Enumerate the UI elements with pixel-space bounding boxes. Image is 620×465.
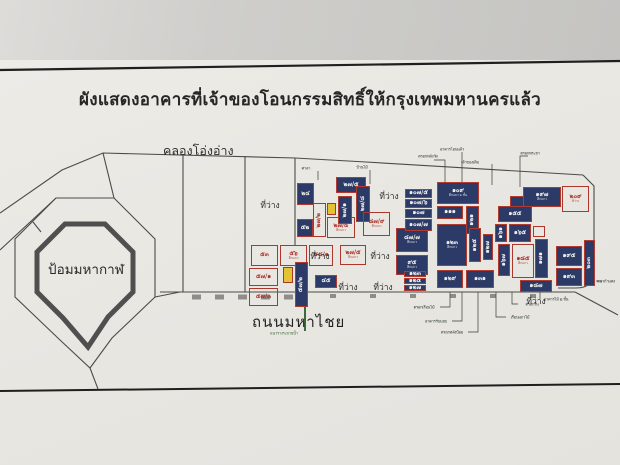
tiny-annotation: ตรอกหลังวัด xyxy=(418,153,438,160)
plot-๑๒๙: ๑๒๙ xyxy=(437,270,463,288)
plot-๑๒๗: ๑๒๗ xyxy=(483,234,493,260)
plot-๕๗/๑: ๕๗/๑ xyxy=(249,268,278,286)
plot-๕๗/๓: ๕๗/๓ xyxy=(249,288,278,306)
tiny-annotation: ตรอกเรือนไม้ xyxy=(414,304,435,311)
tiny-annotation: แนวกำแพง xyxy=(597,278,615,285)
vacant-label: ที่ว่าง xyxy=(260,198,279,212)
vacant-label: ที่ว่าง xyxy=(379,189,398,203)
plot-๑๒๕: ๑๒๕ xyxy=(404,278,426,284)
poster-top-border xyxy=(0,61,620,70)
plot-๑๙๗: ๑๙๗ตึกแถว xyxy=(523,187,561,207)
fort-label: ป้อมมหากาฬ xyxy=(30,258,142,280)
tiny-annotation: อาคารโอนแล้ว xyxy=(440,146,464,153)
plot-๒๔: ๒๔ xyxy=(297,183,314,205)
plot-๑๐๗/๗: ๑๐๗/๗ xyxy=(405,219,432,231)
plot-๑๗๑: ๑๗๑ xyxy=(535,239,548,278)
plot-๑๘๕: ๑๘๕ตึกแถว xyxy=(512,244,534,278)
plot-๑๒๓: ๑๒๓ xyxy=(404,271,426,277)
plot-๒๗/๕: ๒๗/๕ตึกแถว xyxy=(340,245,366,265)
plot-๑๐๗/๕: ๑๐๗/๕ xyxy=(405,189,432,198)
tiny-annotation: ตรอกพระยา xyxy=(520,150,539,157)
vacant-label: ที่ว่าง xyxy=(338,280,357,294)
map-title: ผังแสดงอาคารที่เจ้าของโอนกรรมสิทธิ์ให้กร… xyxy=(0,86,620,113)
tiny-annotation: ตรอกใน xyxy=(525,301,538,308)
plot-๔๕: ๔๕ xyxy=(315,275,337,288)
plot-๑๖๗: ๑๖๗ xyxy=(498,244,510,276)
plot-๕๓: ๕๓ xyxy=(251,245,278,266)
plot-๒๗/๑: ๒๗/๑ xyxy=(338,196,352,224)
plot-๑๙๕: ๑๙๕ xyxy=(556,246,582,266)
tiny-annotation: ตรอกหลังป้อม xyxy=(441,329,463,336)
plot-๒๗/๒: ๒๗/๒ xyxy=(313,203,326,237)
tiny-annotation: เรือนแถวไม้ xyxy=(511,314,530,321)
plot-block xyxy=(283,267,293,283)
plot-block xyxy=(510,196,524,207)
plot-๒๐๓: ๒๐๓ xyxy=(584,240,595,286)
tiny-annotation: ศาลา xyxy=(302,165,311,172)
tiny-annotation: แนวรางระบายน้ำ xyxy=(270,330,298,337)
canal-label: คลองโอ่งอ่าง xyxy=(163,141,234,161)
plot-๑๐๙: ๑๐๙ตึกแถว ๒ ชั้น xyxy=(437,182,479,204)
road-label: ถนนมหาไชย xyxy=(252,310,345,334)
tiny-annotation: เจ้าของเดิม xyxy=(461,159,479,166)
tiny-annotation: บ้านไม้ xyxy=(356,164,367,171)
poster-bottom-border xyxy=(0,384,620,391)
plot-๘๗/๙: ๘๗/๙ตึกแถว xyxy=(363,212,390,236)
plot-๕๗/๒: ๕๗/๒ xyxy=(295,262,308,307)
plot-block xyxy=(327,203,336,215)
vacant-label: ที่ว่าง xyxy=(373,280,392,294)
plot-๑๓๑: ๑๓๑ xyxy=(466,270,494,288)
plot-๑๐๗/๖: ๑๐๗/๖ xyxy=(405,199,432,208)
plot-๑๖๕: ๑๖๕ xyxy=(509,224,531,242)
road-tick-marks xyxy=(192,296,560,297)
plot-๑๙๓: ๑๙๓ xyxy=(556,268,582,286)
plot-๑๕๕: ๑๕๕ xyxy=(498,206,532,222)
tiny-annotation: อาคารรับมอบ xyxy=(425,318,447,325)
plot-๑๑๑: ๑๑๑ xyxy=(437,206,463,219)
plot-๑๖๑: ๑๖๑ xyxy=(495,224,507,242)
plot-block xyxy=(533,226,545,237)
photographed-poster: ผังแสดงอาคารที่เจ้าของโอนกรรมสิทธิ์ให้กร… xyxy=(0,0,620,465)
plot-๑๒๕: ๑๒๕ xyxy=(469,228,481,262)
plot-๕๒: ๕๒ xyxy=(297,219,313,237)
vacant-label: ที่ว่าง xyxy=(370,249,389,263)
plot-๒๐๙: ๒๐๙ที่ว่าง xyxy=(562,186,589,212)
fort-octagon xyxy=(37,224,133,347)
plot-๘๗/๗: ๘๗/๗ตึกแถว xyxy=(396,228,428,252)
plot-๑๒๓: ๑๒๓ตึกแถว xyxy=(437,224,467,266)
plot-๑๒๗: ๑๒๗ xyxy=(404,285,426,291)
tiny-annotation: อาคารไม้ ๒ ชั้น xyxy=(544,296,569,303)
plot-๑๘๗: ๑๘๗ xyxy=(520,280,552,292)
vacant-label: ที่ว่าง xyxy=(310,249,329,263)
plot-๑๐๗: ๑๐๗ xyxy=(405,209,432,218)
